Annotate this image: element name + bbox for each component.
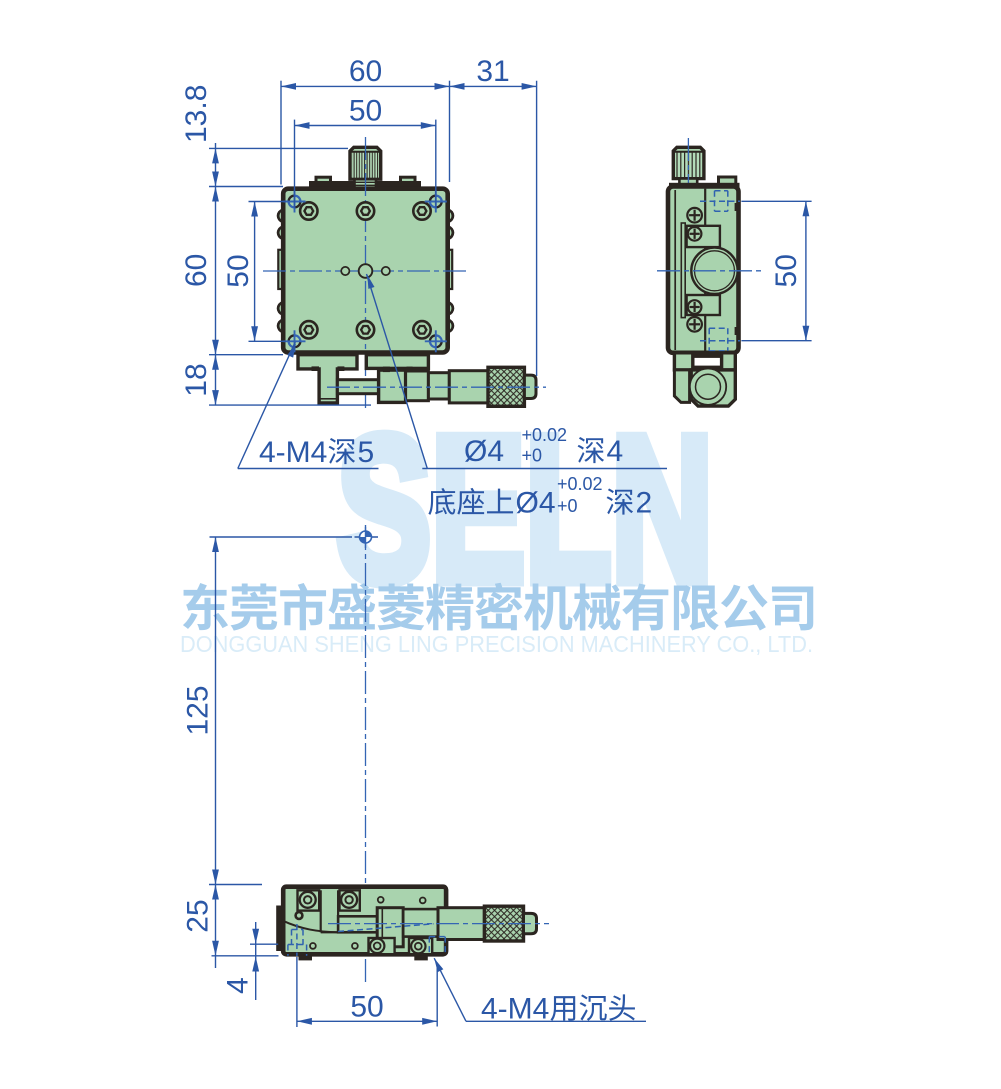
svg-text:50: 50 — [770, 254, 803, 287]
svg-text:4-M4: 4-M4 — [259, 436, 327, 469]
svg-text:4-M4: 4-M4 — [481, 993, 549, 1026]
svg-text:4: 4 — [607, 435, 624, 468]
svg-text:60: 60 — [349, 55, 382, 88]
svg-text:18: 18 — [180, 363, 213, 396]
svg-text:50: 50 — [349, 94, 382, 127]
svg-text:5: 5 — [358, 436, 375, 469]
svg-text:60: 60 — [180, 254, 213, 287]
svg-text:Ø4: Ø4 — [516, 487, 556, 520]
svg-text:50: 50 — [350, 991, 383, 1024]
svg-text:DONGGUAN SHENG LING PRECISION: DONGGUAN SHENG LING PRECISION MACHINERY … — [180, 631, 813, 657]
svg-text:2: 2 — [636, 487, 653, 520]
svg-text:Ø4: Ø4 — [464, 435, 504, 468]
svg-text:+0.02: +0.02 — [522, 425, 568, 445]
svg-text:+0.02: +0.02 — [557, 474, 603, 494]
svg-text:25: 25 — [182, 899, 215, 932]
svg-text:50: 50 — [222, 254, 255, 287]
svg-text:13.8: 13.8 — [180, 85, 213, 143]
svg-text:4: 4 — [221, 977, 254, 994]
svg-text:+0: +0 — [557, 496, 578, 516]
svg-text:+0: +0 — [522, 446, 543, 466]
svg-text:31: 31 — [476, 55, 509, 88]
svg-text:125: 125 — [182, 685, 215, 735]
